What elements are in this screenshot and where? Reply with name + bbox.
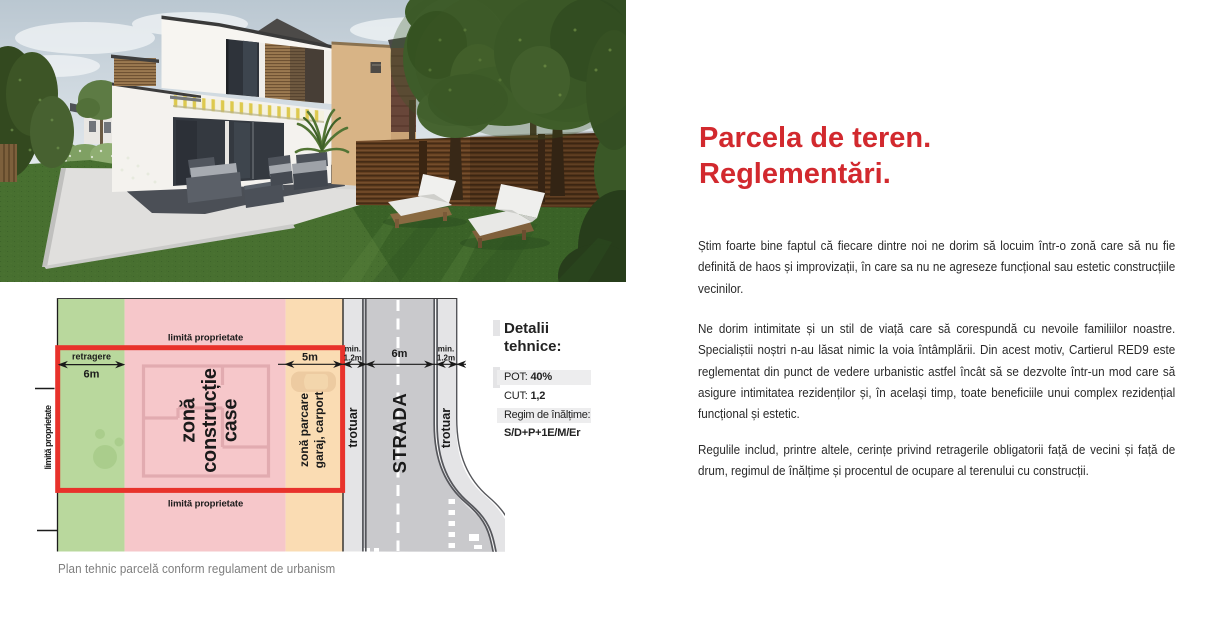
svg-text:zonă: zonă [178,397,200,443]
svg-text:STRADA: STRADA [389,393,410,474]
svg-text:case: case [220,399,242,442]
svg-text:6m: 6m [84,369,100,381]
svg-text:limită proprietate: limită proprietate [43,405,53,470]
svg-text:5m: 5m [302,352,318,364]
svg-text:6m: 6m [392,348,408,360]
svg-text:zonă parcare: zonă parcare [297,393,311,467]
svg-text:1.2m: 1.2m [437,354,455,363]
svg-text:garaj, carport: garaj, carport [312,392,326,469]
svg-text:limită proprietate: limită proprietate [168,499,243,510]
svg-text:1.2m: 1.2m [344,354,362,363]
svg-text:trotuar: trotuar [346,407,360,447]
svg-text:trotuar: trotuar [439,408,453,448]
svg-text:construcție: construcție [199,368,221,473]
svg-text:min.: min. [345,345,361,354]
svg-text:retragere: retragere [72,352,111,362]
svg-text:min.: min. [438,345,454,354]
svg-text:limită proprietate: limită proprietate [168,333,243,344]
